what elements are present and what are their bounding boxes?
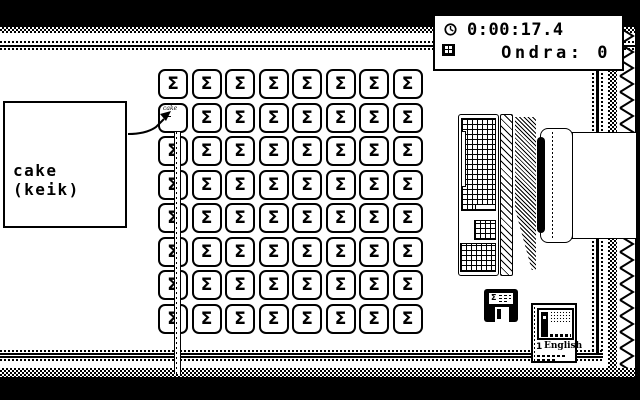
word-card: cake (keik) xyxy=(3,101,127,228)
board-tile[interactable]: Σ xyxy=(393,203,423,233)
picture-ground xyxy=(550,334,571,337)
picture-sky xyxy=(550,311,571,322)
board-tile[interactable]: Σ xyxy=(225,304,255,334)
board-tile[interactable]: Σ xyxy=(192,203,222,233)
board-tile[interactable]: Σ xyxy=(359,69,389,99)
board-tile[interactable]: Σ xyxy=(192,69,222,99)
keyboard-side-edge xyxy=(500,114,513,276)
floppy-label-sigma: Σ xyxy=(491,293,496,302)
floppy-label: Σ xyxy=(489,293,513,304)
elapsed-time: 0:00:17.4 xyxy=(467,20,564,40)
floppy-label-line xyxy=(499,301,508,302)
board-tile[interactable]: Σ xyxy=(292,203,322,233)
keyboard-main-keys xyxy=(461,118,496,211)
board-tile[interactable]: Σ xyxy=(393,304,423,334)
board-tile[interactable]: Σ xyxy=(393,170,423,200)
keyboard-shadow-hatch xyxy=(515,117,536,270)
lesson-number: 1 xyxy=(536,342,542,352)
board-tile[interactable]: Σ xyxy=(192,237,222,267)
board-tile[interactable]: Σ xyxy=(359,136,389,166)
board-tile[interactable]: Σ xyxy=(393,103,423,133)
board-tile[interactable]: Σ xyxy=(158,270,188,300)
board-tile[interactable]: Σ xyxy=(225,170,255,200)
board-tile[interactable]: Σ xyxy=(158,203,188,233)
board-tile[interactable]: Σ xyxy=(259,237,289,267)
clock-icon xyxy=(444,23,457,36)
bottom-solid-line-2 xyxy=(0,356,603,358)
lesson-card[interactable]: 1 English xyxy=(531,303,577,363)
keyboard-arrow-keys xyxy=(474,220,496,240)
board-tile[interactable]: Σ xyxy=(192,103,222,133)
board-tile[interactable]: Σ xyxy=(225,270,255,300)
board-tile[interactable]: Σ xyxy=(158,69,188,99)
bottom-checker-band xyxy=(0,368,640,377)
board-tile[interactable]: Σ xyxy=(292,69,322,99)
board-tile[interactable]: Σ xyxy=(393,136,423,166)
board-tile[interactable]: Σ xyxy=(259,270,289,300)
board-tile[interactable]: Σ xyxy=(292,304,322,334)
board-tile[interactable]: Σ xyxy=(359,103,389,133)
board-tile[interactable]: Σ xyxy=(225,69,255,99)
board-tile[interactable]: Σ xyxy=(158,170,188,200)
board-tile[interactable]: Σ xyxy=(326,270,356,300)
hud-panel: 0:00:17.4 Ondra: 0 xyxy=(433,14,624,71)
cards-icon xyxy=(442,44,455,56)
board-tile[interactable]: Σ xyxy=(192,270,222,300)
computer-body xyxy=(572,132,637,239)
board-tile[interactable]: Σ xyxy=(393,69,423,99)
board-tile[interactable]: Σ xyxy=(359,304,389,334)
board-tile[interactable]: Σ xyxy=(292,136,322,166)
word-card-word: cake xyxy=(13,161,58,180)
bottom-dotted-line-1 xyxy=(0,350,603,352)
board-tile[interactable]: Σ xyxy=(393,237,423,267)
board-tile[interactable]: Σ xyxy=(158,237,188,267)
board-tile[interactable]: Σ xyxy=(292,237,322,267)
floppy-drive-slot xyxy=(537,137,545,233)
word-card-phonetic: (keik) xyxy=(13,180,80,199)
board-tile[interactable]: Σ xyxy=(225,203,255,233)
game-board: ΣΣΣΣΣΣΣΣcakeΣΣΣΣΣΣΣΣΣΣΣΣΣΣΣΣΣΣΣΣΣΣΣΣΣΣΣΣ… xyxy=(158,69,428,339)
big-ben-clockface xyxy=(543,316,546,319)
board-tile[interactable]: Σ xyxy=(292,270,322,300)
board-tile[interactable]: Σ xyxy=(326,304,356,334)
board-tile[interactable]: Σ xyxy=(225,136,255,166)
floppy-label-line xyxy=(499,295,511,296)
bottom-solid-line-1 xyxy=(0,353,603,355)
board-tile[interactable]: Σ xyxy=(359,203,389,233)
floppy-shutter xyxy=(495,307,509,322)
floppy-label-line xyxy=(499,298,511,299)
bottom-dotted-line-2 xyxy=(0,359,603,361)
board-tile[interactable]: Σ xyxy=(259,69,289,99)
board-tile[interactable]: Σ xyxy=(359,270,389,300)
board-tile[interactable]: Σ xyxy=(359,237,389,267)
board-tile[interactable]: Σ xyxy=(259,304,289,334)
lesson-title: English xyxy=(544,341,582,351)
lesson-fine-print xyxy=(537,359,556,361)
board-tile[interactable]: Σ xyxy=(192,304,222,334)
board-tile[interactable]: Σ xyxy=(225,103,255,133)
board-tile[interactable]: Σ xyxy=(158,304,188,334)
floppy-disk-icon[interactable]: Σ xyxy=(484,289,518,322)
board-tile[interactable]: Σ xyxy=(259,103,289,133)
floppy-shutter-hole xyxy=(497,309,501,319)
lesson-card-spine xyxy=(534,307,535,361)
board-tile[interactable]: Σ xyxy=(158,136,188,166)
board-tile[interactable]: Σ xyxy=(326,103,356,133)
player-score: Ondra: 0 xyxy=(501,43,611,63)
board-tile[interactable]: Σ xyxy=(326,136,356,166)
board-tile[interactable]: Σ xyxy=(259,203,289,233)
mouse-cable xyxy=(174,132,181,374)
board-tile[interactable]: Σ xyxy=(192,136,222,166)
lesson-fine-print xyxy=(537,355,565,357)
keyboard-numpad xyxy=(460,243,496,272)
board-tile[interactable]: Σ xyxy=(326,237,356,267)
board-tile[interactable]: Σ xyxy=(259,170,289,200)
lesson-card-picture xyxy=(537,308,574,340)
board-tile[interactable]: Σ xyxy=(292,103,322,133)
board-tile[interactable]: Σ xyxy=(326,203,356,233)
desk-scene: 0:00:17.4 Ondra: 0 cake (keik) ΣΣΣΣΣΣΣΣc… xyxy=(0,0,640,400)
cursor-arrow-icon xyxy=(120,100,180,140)
board-tile[interactable]: Σ xyxy=(326,170,356,200)
board-tile[interactable]: Σ xyxy=(326,69,356,99)
board-tile[interactable]: Σ xyxy=(393,270,423,300)
keyboard-spacebar xyxy=(475,204,496,210)
board-tile[interactable]: Σ xyxy=(292,170,322,200)
board-tile[interactable]: Σ xyxy=(225,237,255,267)
board-tile[interactable]: Σ xyxy=(192,170,222,200)
board-tile[interactable]: Σ xyxy=(359,170,389,200)
board-tile[interactable]: Σ xyxy=(259,136,289,166)
keyboard-tall-key xyxy=(461,131,466,187)
computer-front-seam xyxy=(552,132,553,240)
bottom-black-band xyxy=(0,377,640,400)
